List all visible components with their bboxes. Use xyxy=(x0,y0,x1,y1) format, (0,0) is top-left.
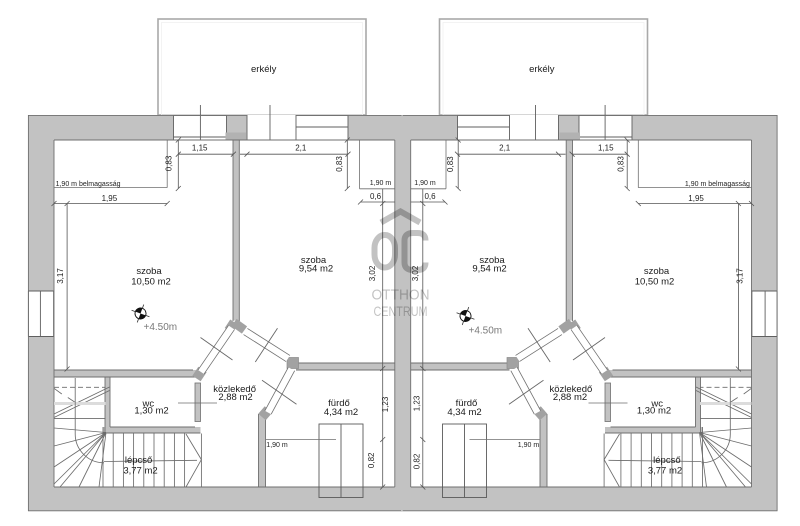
svg-text:lépcső: lépcső xyxy=(125,455,152,466)
svg-text:4,34 m2: 4,34 m2 xyxy=(447,407,481,418)
svg-text:1,15: 1,15 xyxy=(192,143,208,152)
svg-text:+4.50m: +4.50m xyxy=(469,326,503,337)
svg-text:1,90 m: 1,90 m xyxy=(370,180,392,187)
svg-text:3,02: 3,02 xyxy=(368,265,377,281)
svg-text:10,50 m2: 10,50 m2 xyxy=(131,277,171,288)
svg-text:0,82: 0,82 xyxy=(412,453,421,469)
svg-text:3,17: 3,17 xyxy=(736,268,745,284)
svg-text:szoba: szoba xyxy=(136,266,162,277)
svg-text:2,88 m2: 2,88 m2 xyxy=(218,392,252,403)
svg-text:1,23: 1,23 xyxy=(381,396,390,412)
svg-text:3,77 m2: 3,77 m2 xyxy=(648,465,682,476)
svg-text:szoba: szoba xyxy=(644,266,670,277)
svg-text:OTTHON: OTTHON xyxy=(372,287,430,304)
svg-text:0,83: 0,83 xyxy=(617,156,626,172)
svg-text:2,1: 2,1 xyxy=(295,143,307,152)
svg-text:2,1: 2,1 xyxy=(499,143,511,152)
svg-text:0,83: 0,83 xyxy=(165,155,174,171)
svg-text:1,90 m belmagasság: 1,90 m belmagasság xyxy=(56,181,121,188)
svg-text:0,82: 0,82 xyxy=(367,452,376,468)
svg-text:1,90 m belmagasság: 1,90 m belmagasság xyxy=(685,181,750,188)
svg-text:1,30 m2: 1,30 m2 xyxy=(134,406,168,417)
svg-text:1,95: 1,95 xyxy=(102,194,118,203)
svg-text:1,15: 1,15 xyxy=(598,143,614,152)
svg-text:3,02: 3,02 xyxy=(411,265,420,281)
svg-text:10,50 m2: 10,50 m2 xyxy=(635,277,675,288)
svg-text:9,54 m2: 9,54 m2 xyxy=(299,264,333,275)
svg-text:erkély: erkély xyxy=(529,64,555,75)
svg-text:0,83: 0,83 xyxy=(335,156,344,172)
svg-text:3,77 m2: 3,77 m2 xyxy=(123,465,157,476)
svg-text:1,90 m: 1,90 m xyxy=(266,442,288,449)
svg-text:+4.50m: +4.50m xyxy=(144,322,178,333)
svg-text:CENTRUM: CENTRUM xyxy=(374,303,428,319)
svg-text:9,54 m2: 9,54 m2 xyxy=(472,264,506,275)
svg-text:4,34 m2: 4,34 m2 xyxy=(324,407,358,418)
svg-text:3,17: 3,17 xyxy=(56,268,65,284)
svg-text:2,88 m2: 2,88 m2 xyxy=(553,392,587,403)
svg-text:0,6: 0,6 xyxy=(424,192,436,201)
svg-text:1,30 m2: 1,30 m2 xyxy=(637,406,671,417)
svg-text:1,23: 1,23 xyxy=(412,395,421,411)
svg-text:lépcső: lépcső xyxy=(653,455,680,466)
svg-text:1,90 m: 1,90 m xyxy=(414,180,436,187)
svg-text:0,83: 0,83 xyxy=(446,156,455,172)
svg-text:1,95: 1,95 xyxy=(688,194,704,203)
svg-text:erkély: erkély xyxy=(251,64,277,75)
svg-text:0,6: 0,6 xyxy=(370,192,382,201)
svg-text:1,90 m: 1,90 m xyxy=(518,442,540,449)
